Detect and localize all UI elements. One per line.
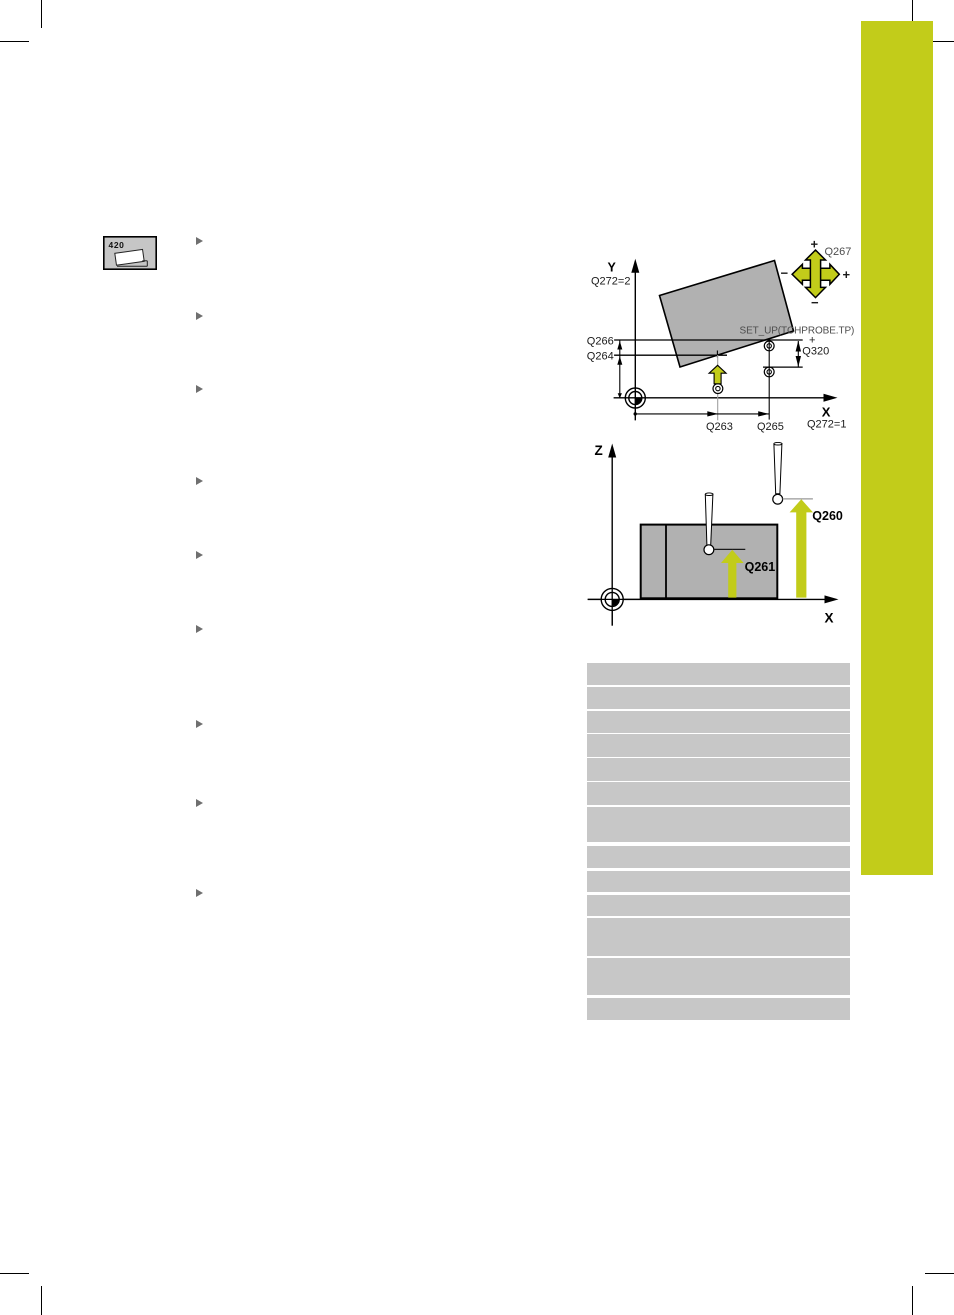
svg-text:−: − bbox=[781, 266, 789, 281]
svg-text:Q320: Q320 bbox=[802, 346, 829, 358]
svg-text:SET_UP(TCHPROBE.TP): SET_UP(TCHPROBE.TP) bbox=[740, 326, 855, 337]
svg-text:Q264: Q264 bbox=[587, 350, 614, 362]
svg-text:X: X bbox=[822, 404, 831, 419]
svg-text:Q260: Q260 bbox=[812, 509, 843, 523]
svg-text:+: + bbox=[811, 237, 819, 252]
svg-text:Q261: Q261 bbox=[745, 560, 776, 574]
svg-text:420: 420 bbox=[109, 240, 125, 250]
svg-text:+: + bbox=[843, 267, 851, 282]
svg-text:Q272=1: Q272=1 bbox=[807, 418, 846, 430]
svg-text:−: − bbox=[811, 295, 819, 310]
svg-text:Q272=2: Q272=2 bbox=[591, 276, 630, 288]
svg-text:Q263: Q263 bbox=[706, 421, 733, 433]
svg-text:Q266: Q266 bbox=[587, 335, 614, 347]
svg-text:Z: Z bbox=[595, 443, 603, 458]
svg-text:Q265: Q265 bbox=[757, 421, 784, 433]
svg-text:Y: Y bbox=[608, 261, 617, 275]
svg-text:Q267: Q267 bbox=[825, 246, 852, 258]
svg-text:X: X bbox=[825, 611, 834, 626]
